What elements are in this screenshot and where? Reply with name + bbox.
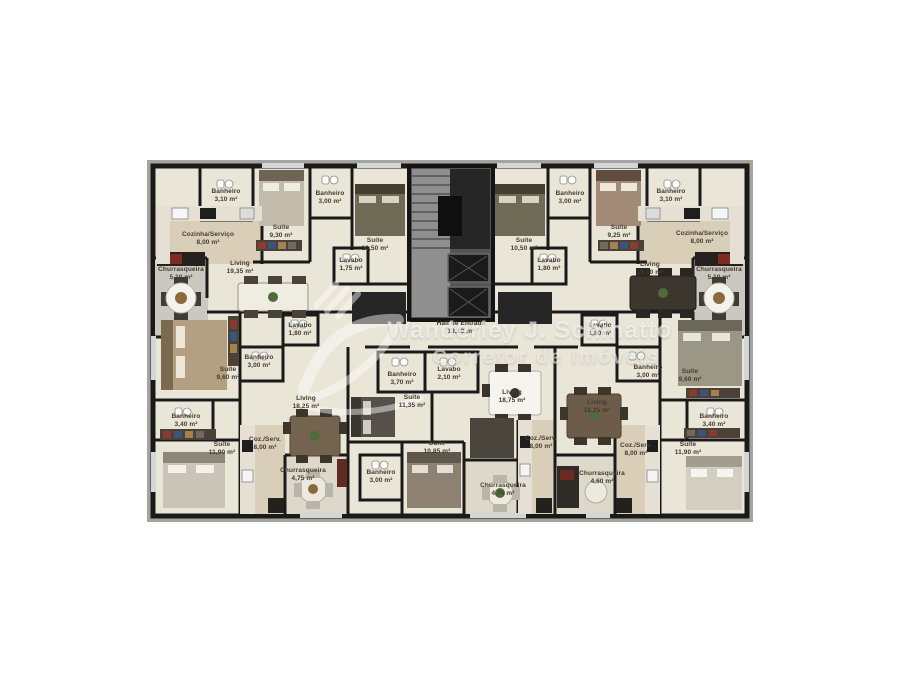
bed <box>355 184 405 236</box>
room-label: Banheiro3,10 m² <box>657 188 686 204</box>
bed <box>351 397 395 437</box>
room-label: Churrasqueira5,10 m² <box>158 266 204 282</box>
room-label: Lavabo1,80 m² <box>288 322 311 338</box>
room-label: Churrasqueira4,75 m² <box>480 482 526 498</box>
room-label: Suíte10,85 m² <box>424 440 451 456</box>
room-label: Banheiro3,00 m² <box>245 354 274 370</box>
wardrobe-shelf <box>256 240 302 251</box>
room-label: Lavabo1,75 m² <box>339 257 362 273</box>
room-label: Banheiro3,00 m² <box>556 190 585 206</box>
bed <box>407 452 461 508</box>
dining-table <box>560 387 628 445</box>
room-label: Churrasqueira4,60 m² <box>579 470 625 486</box>
room-label: Banheiro3,40 m² <box>700 413 729 429</box>
room-label: Suíte10,50 m² <box>362 237 389 253</box>
room-label: Living18,25 m² <box>584 399 611 415</box>
wardrobe-shelf <box>686 388 740 398</box>
room-label: Living18,75 m² <box>499 389 526 405</box>
bed <box>163 452 225 508</box>
wardrobe-shelf <box>598 240 644 251</box>
room-label: Suíte9,60 m² <box>678 368 701 384</box>
room-label: Coz./Serv.8,00 m² <box>249 436 281 452</box>
room-label: Coz./Serv.8,00 m² <box>525 435 557 451</box>
room-label: Suíte9,30 m² <box>269 224 292 240</box>
room-label: Lavabo1,80 m² <box>537 257 560 273</box>
wardrobe-shelf <box>160 429 216 440</box>
bed <box>495 184 545 236</box>
bed <box>259 170 304 226</box>
wardrobe-shelf <box>684 428 740 438</box>
watermark-line2: Corretor de Imóveis <box>433 347 660 370</box>
room-label: Cozinha/Serviço8,00 m² <box>676 230 728 246</box>
wardrobe-shelf <box>228 316 239 366</box>
room-label: Banheiro3,00 m² <box>316 190 345 206</box>
room-label: Suíte11,35 m² <box>399 394 425 410</box>
room-label: Cozinha/Serviço8,00 m² <box>182 231 234 247</box>
room-label: Churrasqueira4,75 m² <box>280 467 326 483</box>
room-label: Coz./Serv.8,00 m² <box>620 442 652 458</box>
sofa <box>470 418 514 458</box>
dining-table <box>283 409 347 463</box>
bed <box>686 456 742 510</box>
bed <box>596 170 641 226</box>
barbecue-grill <box>557 466 579 508</box>
room-label: Churrasqueira5,10 m² <box>696 266 742 282</box>
barbecue-grill <box>337 459 347 487</box>
floor-plan-image: Wanderley J. Schinatto Corretor de Imóve… <box>0 0 900 675</box>
room-label: Suíte10,50 m² <box>511 237 538 253</box>
room-label: Living19,35 m² <box>227 260 254 276</box>
room-label: Suíte9,25 m² <box>607 224 630 240</box>
room-label: Suíte11,90 m² <box>209 441 235 457</box>
stair-elevator-core <box>409 166 493 320</box>
room-label: Living18,25 m² <box>293 395 320 411</box>
room-label: Suíte9,60 m² <box>216 366 239 382</box>
room-label: Banheiro3,10 m² <box>212 188 241 204</box>
room-label: Banheiro3,70 m² <box>388 371 417 387</box>
watermark-line1: Wanderley J. Schinatto <box>387 317 672 345</box>
room-label: Banheiro3,40 m² <box>172 413 201 429</box>
room-label: Suíte11,90 m² <box>675 441 701 457</box>
dining-table <box>238 276 308 318</box>
room-label: Living19,10 m² <box>637 261 664 277</box>
room-label: Banheiro3,00 m² <box>367 469 396 485</box>
